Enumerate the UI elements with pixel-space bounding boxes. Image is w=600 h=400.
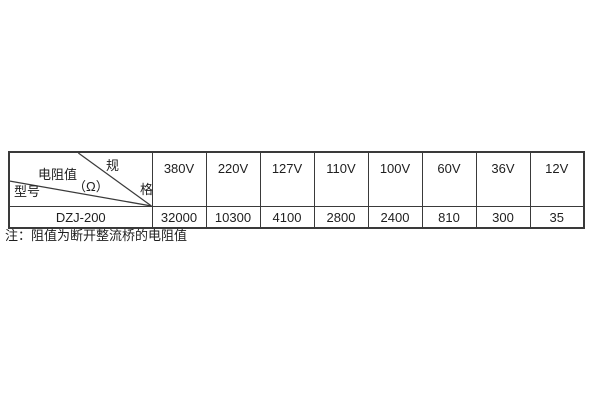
column-header-60v: 60V: [422, 152, 476, 207]
value-cell-110v: 2800: [314, 207, 368, 229]
value-cell-220v: 10300: [206, 207, 260, 229]
column-header-110v: 110V: [314, 152, 368, 207]
model-cell: DZJ-200: [9, 207, 152, 229]
value-cell-127v: 4100: [260, 207, 314, 229]
column-header-36v: 36V: [476, 152, 530, 207]
spec-table: 规 格 电阻值 （Ω） 型号 380V 220V 127V 110V 100V …: [8, 151, 585, 229]
value-cell-12v: 35: [530, 207, 584, 229]
column-header-380v: 380V: [152, 152, 206, 207]
value-cell-380v: 32000: [152, 207, 206, 229]
table-row: DZJ-200 32000 10300 4100 2800 2400 810 3…: [9, 207, 584, 229]
corner-label-model: 型号: [14, 185, 40, 198]
value-cell-36v: 300: [476, 207, 530, 229]
corner-label-resistance-unit: （Ω）: [73, 180, 109, 193]
corner-label-resistance: 电阻值: [38, 168, 77, 181]
corner-label-spec-char-bottom: 格: [140, 183, 153, 196]
column-header-12v: 12V: [530, 152, 584, 207]
value-cell-100v: 2400: [368, 207, 422, 229]
header-row: 规 格 电阻值 （Ω） 型号 380V 220V 127V 110V 100V …: [9, 152, 584, 207]
column-header-220v: 220V: [206, 152, 260, 207]
value-cell-60v: 810: [422, 207, 476, 229]
footnote: 注：阻值为断开整流桥的电阻值: [5, 228, 187, 244]
page: 规 格 电阻值 （Ω） 型号 380V 220V 127V 110V 100V …: [0, 0, 600, 400]
corner-label-spec-char-top: 规: [106, 159, 119, 172]
column-header-100v: 100V: [368, 152, 422, 207]
column-header-127v: 127V: [260, 152, 314, 207]
diagonal-header-cell: 规 格 电阻值 （Ω） 型号: [9, 152, 152, 207]
